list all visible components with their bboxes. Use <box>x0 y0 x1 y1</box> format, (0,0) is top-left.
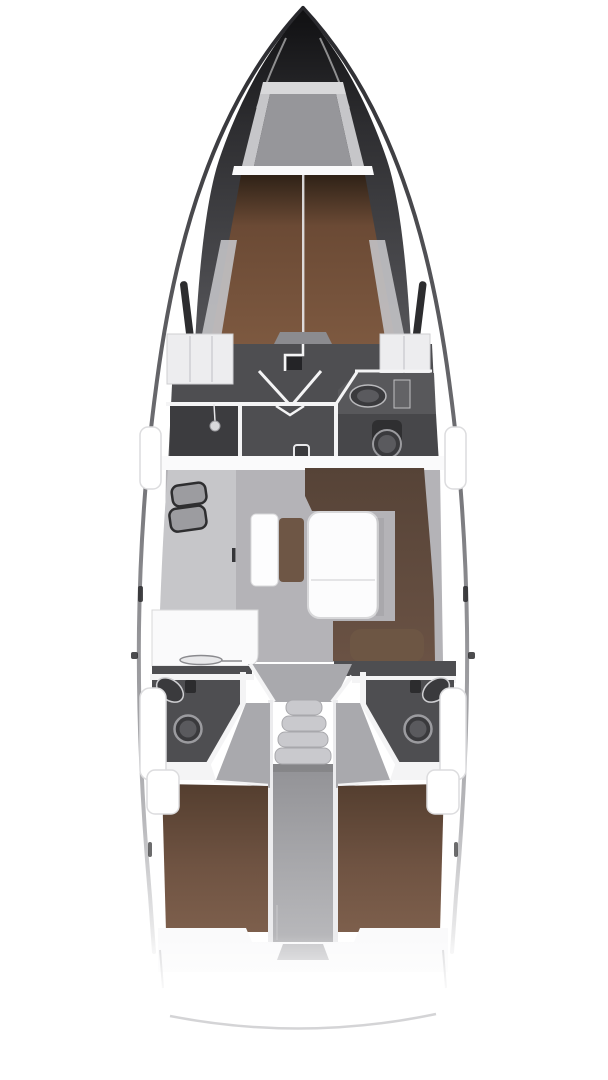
companionway-step <box>282 716 326 731</box>
coaming-starboard <box>440 688 466 780</box>
galley-sink-2 <box>169 505 208 533</box>
deck-locker-starboard <box>445 427 466 489</box>
head-wall-side <box>360 672 366 704</box>
companionway-step <box>275 748 331 764</box>
faucet-icon <box>410 680 421 693</box>
galley-front-shadow <box>152 666 252 674</box>
sink-bowl <box>357 390 379 403</box>
hull-fitting <box>138 586 143 602</box>
companionway-step <box>278 732 328 747</box>
companionway-step <box>286 700 322 715</box>
cockpit-locker-starboard <box>427 770 459 814</box>
yacht-floor-plan <box>0 0 608 1080</box>
sofa-aft-shadow <box>334 661 456 676</box>
shower-hose <box>214 404 215 421</box>
faucet-icon <box>185 680 196 693</box>
hull-fitting <box>468 652 475 659</box>
stern-section <box>110 928 500 1040</box>
stern-fade <box>110 935 500 1040</box>
shower-head-icon <box>210 421 220 431</box>
hull-fitting <box>454 842 458 857</box>
toilet-bowl <box>378 435 396 453</box>
toilet-bowl <box>410 721 427 738</box>
anchor-locker-lid <box>260 82 346 94</box>
deck-locker-port <box>140 427 161 489</box>
forward-shelf <box>232 166 374 175</box>
galley-handle <box>232 548 236 562</box>
anchor-locker-floor <box>254 94 352 166</box>
table-shadow <box>376 518 384 616</box>
head-cupboard <box>394 380 410 408</box>
mast-step <box>287 357 302 370</box>
hull-fitting <box>131 652 138 659</box>
head-wall-side <box>240 672 246 704</box>
yacht-floor-plan-page <box>0 0 608 1080</box>
toilet-bowl <box>180 721 197 738</box>
coaming-port <box>140 688 166 780</box>
stove-icon <box>180 656 222 665</box>
engine-box <box>273 764 333 944</box>
berth-centerline <box>302 175 304 345</box>
berth-entry-step <box>273 332 333 346</box>
cockpit-locker-port <box>147 770 179 814</box>
hull-fitting <box>463 586 468 602</box>
engine-box-shadow <box>273 764 333 772</box>
center-bench-cushion <box>279 518 304 582</box>
galley-sink-1 <box>171 482 208 508</box>
wardrobe-port <box>167 334 233 384</box>
saloon-table <box>308 512 378 618</box>
sofa-cushion <box>350 629 424 662</box>
dressing-aft-wall <box>166 402 338 406</box>
forward-head <box>336 371 439 464</box>
companionway <box>268 700 338 948</box>
bulkhead-band <box>152 456 456 470</box>
hull-fitting <box>148 842 152 857</box>
center-bench <box>251 514 278 586</box>
